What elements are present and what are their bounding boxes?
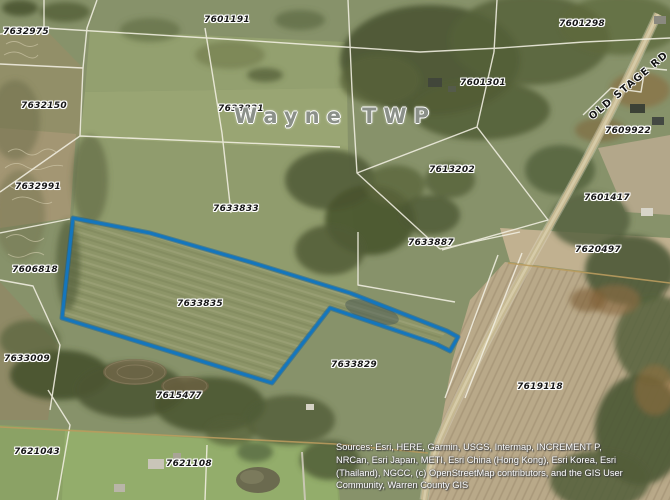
parcel-label-7633829[interactable]: 7633829 bbox=[331, 360, 377, 370]
attribution-line: (Thailand), NGCC, (c) OpenStreetMap cont… bbox=[336, 467, 666, 480]
parcel-label-7621108[interactable]: 7621108 bbox=[166, 459, 212, 469]
parcel-label-7613202[interactable]: 7613202 bbox=[429, 165, 475, 175]
parcel-label-7619118[interactable]: 7619118 bbox=[517, 382, 563, 392]
parcel-label-7632991[interactable]: 7632991 bbox=[15, 182, 61, 192]
parcel-label-7621043[interactable]: 7621043 bbox=[14, 447, 60, 457]
gis-map-viewport[interactable]: 7632975760119176012987632150763383176013… bbox=[0, 0, 670, 500]
parcel-label-7633835[interactable]: 7633835 bbox=[177, 299, 223, 309]
parcel-label-7601191[interactable]: 7601191 bbox=[204, 15, 250, 25]
parcel-label-7633009[interactable]: 7633009 bbox=[4, 354, 50, 364]
parcel-label-7632975[interactable]: 7632975 bbox=[3, 27, 49, 37]
parcel-label-7632150[interactable]: 7632150 bbox=[21, 101, 67, 111]
township-label: Wayne TWP bbox=[234, 104, 436, 128]
parcel-label-7633887[interactable]: 7633887 bbox=[408, 238, 454, 248]
parcel-label-7601301[interactable]: 7601301 bbox=[460, 78, 506, 88]
parcel-label-7601417[interactable]: 7601417 bbox=[584, 193, 630, 203]
attribution-line: NRCan, Esri Japan, METI, Esri China (Hon… bbox=[336, 454, 666, 467]
parcel-label-7601298[interactable]: 7601298 bbox=[559, 19, 605, 29]
parcel-label-7620497[interactable]: 7620497 bbox=[575, 245, 621, 255]
parcel-label-7633833[interactable]: 7633833 bbox=[213, 204, 259, 214]
parcel-label-7615477[interactable]: 7615477 bbox=[156, 391, 202, 401]
attribution-line: Sources: Esri, HERE, Garmin, USGS, Inter… bbox=[336, 441, 666, 454]
map-attribution: Sources: Esri, HERE, Garmin, USGS, Inter… bbox=[336, 441, 666, 492]
attribution-line: Community, Warren County GIS bbox=[336, 479, 666, 492]
aerial-imagery-layer bbox=[0, 0, 670, 500]
parcel-label-7609922[interactable]: 7609922 bbox=[605, 126, 651, 136]
parcel-label-7606818[interactable]: 7606818 bbox=[12, 265, 58, 275]
